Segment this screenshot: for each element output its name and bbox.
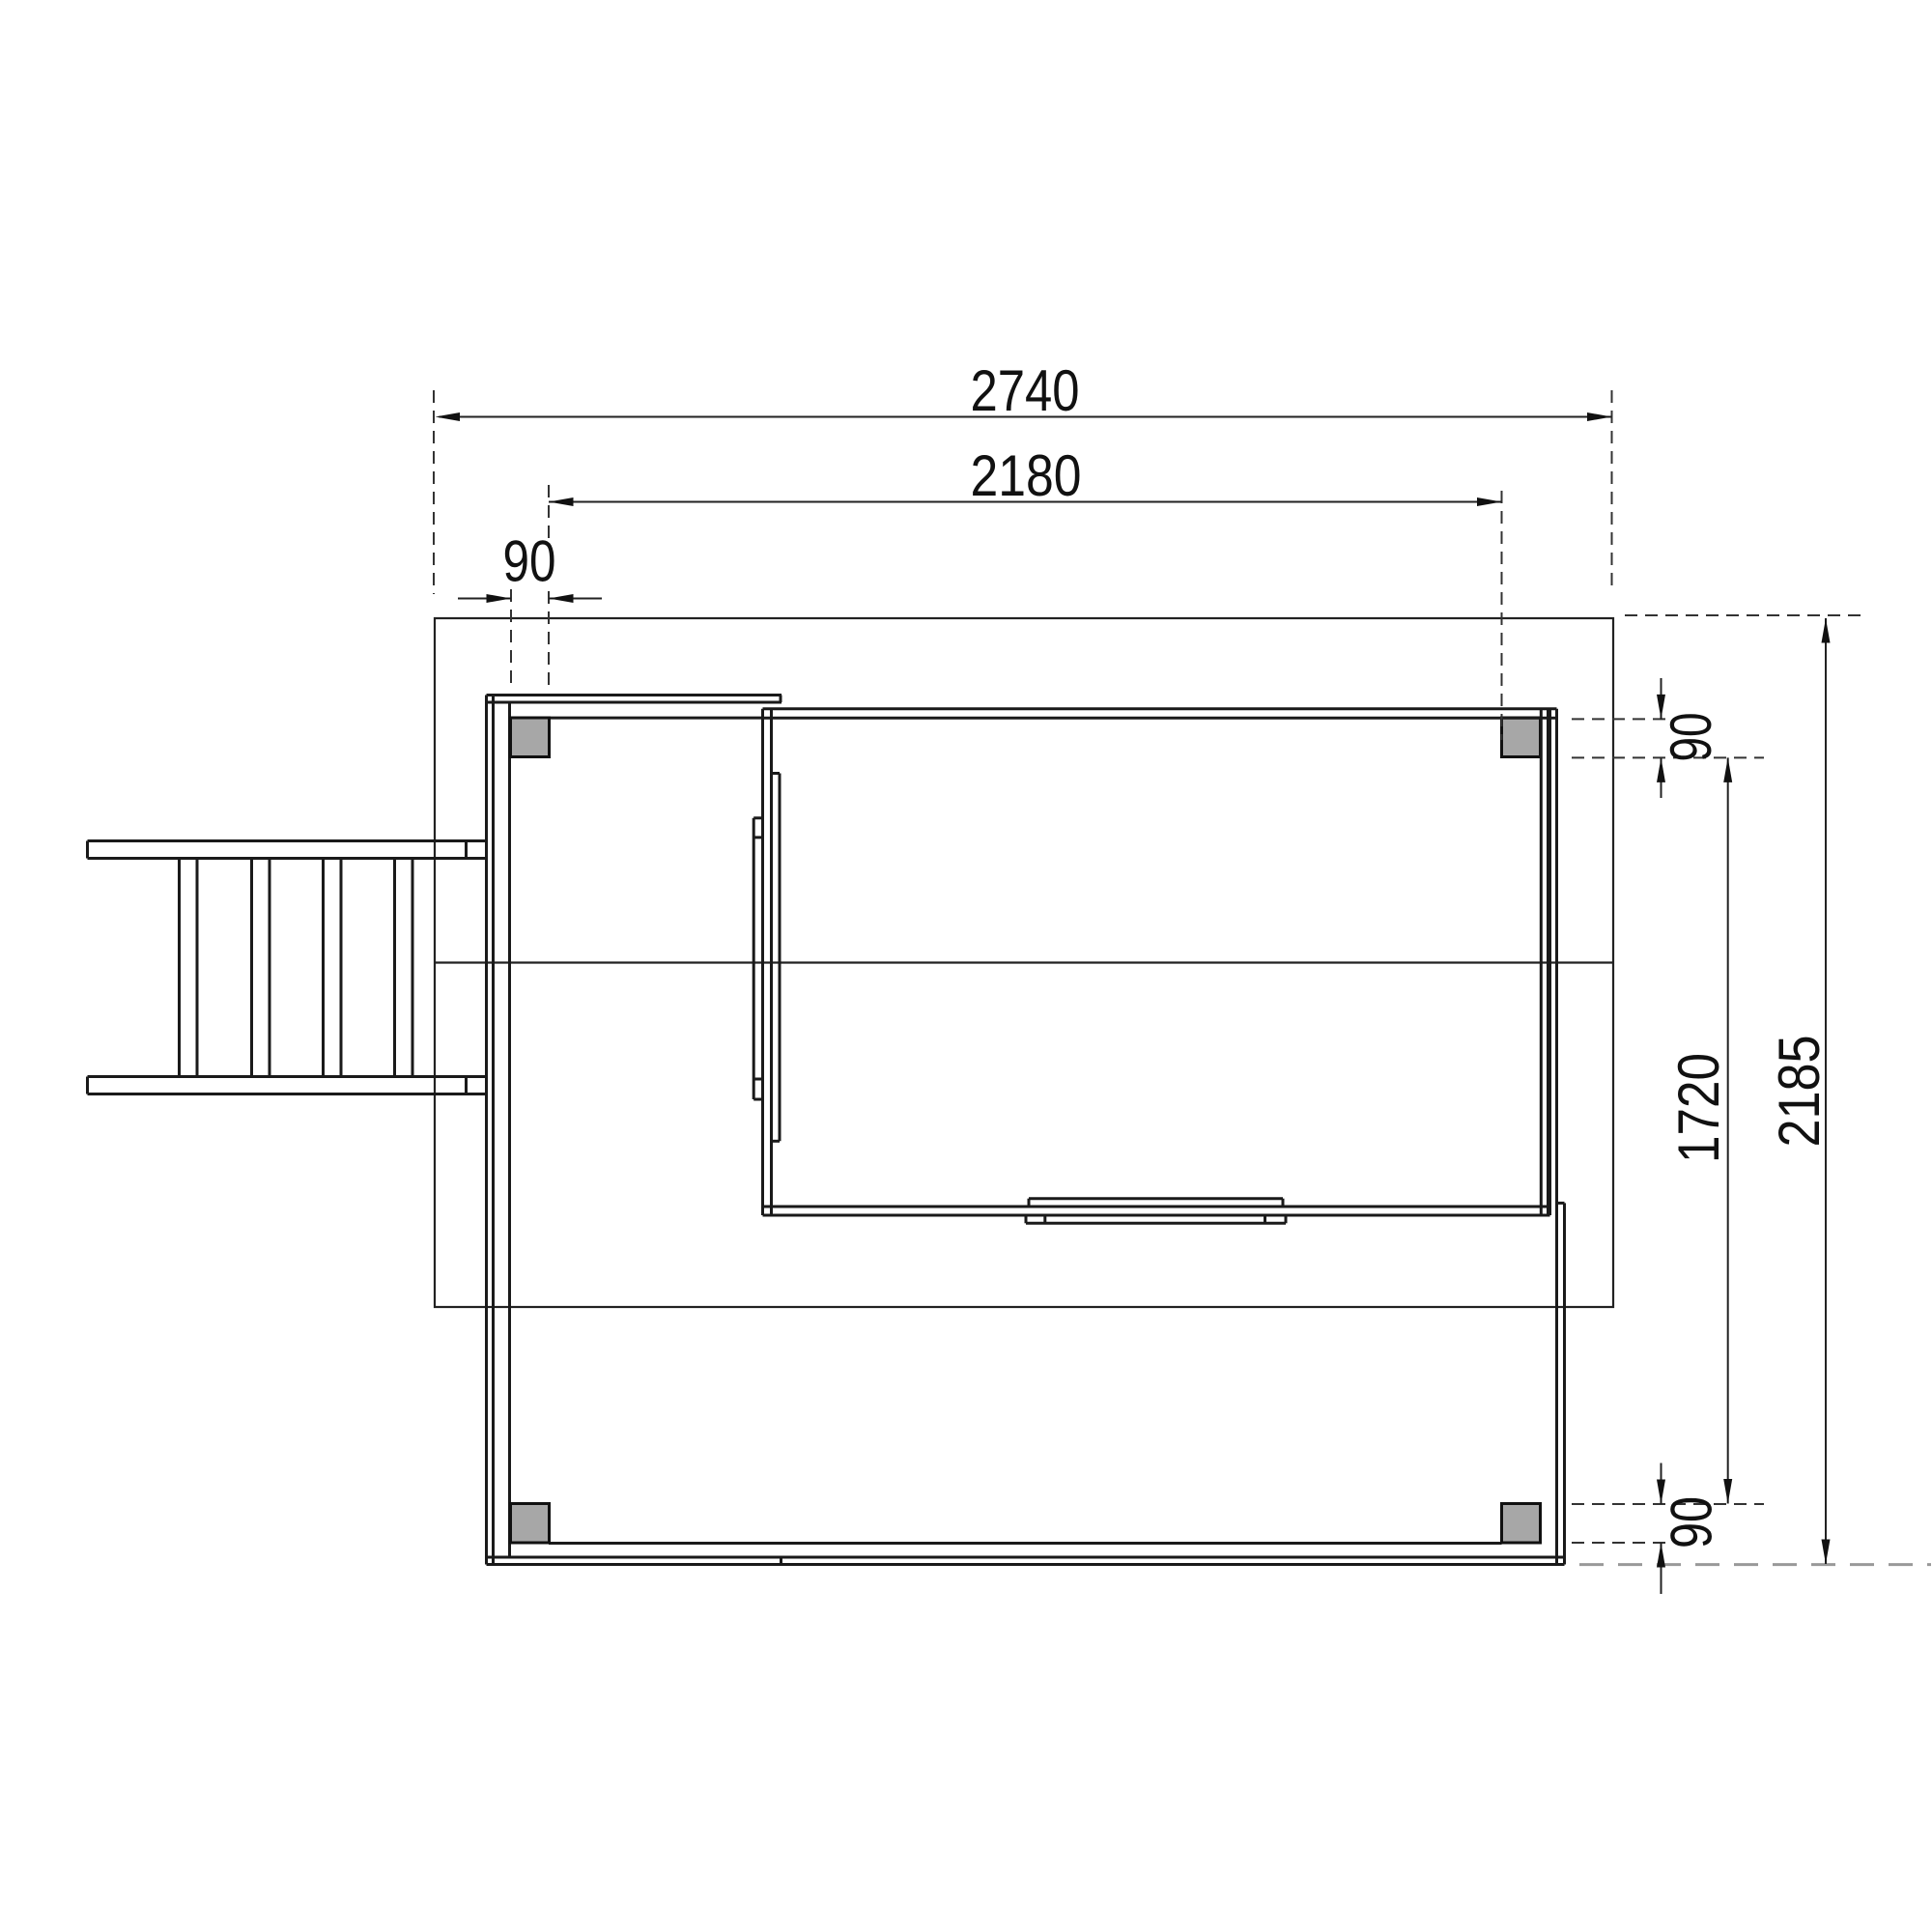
svg-text:2180: 2180 — [971, 443, 1082, 508]
svg-text:90: 90 — [503, 529, 556, 594]
svg-text:1720: 1720 — [1666, 1053, 1731, 1163]
svg-text:90: 90 — [1660, 1496, 1724, 1548]
svg-text:90: 90 — [1659, 713, 1723, 762]
svg-text:2185: 2185 — [1767, 1036, 1832, 1148]
svg-text:2740: 2740 — [971, 358, 1080, 423]
